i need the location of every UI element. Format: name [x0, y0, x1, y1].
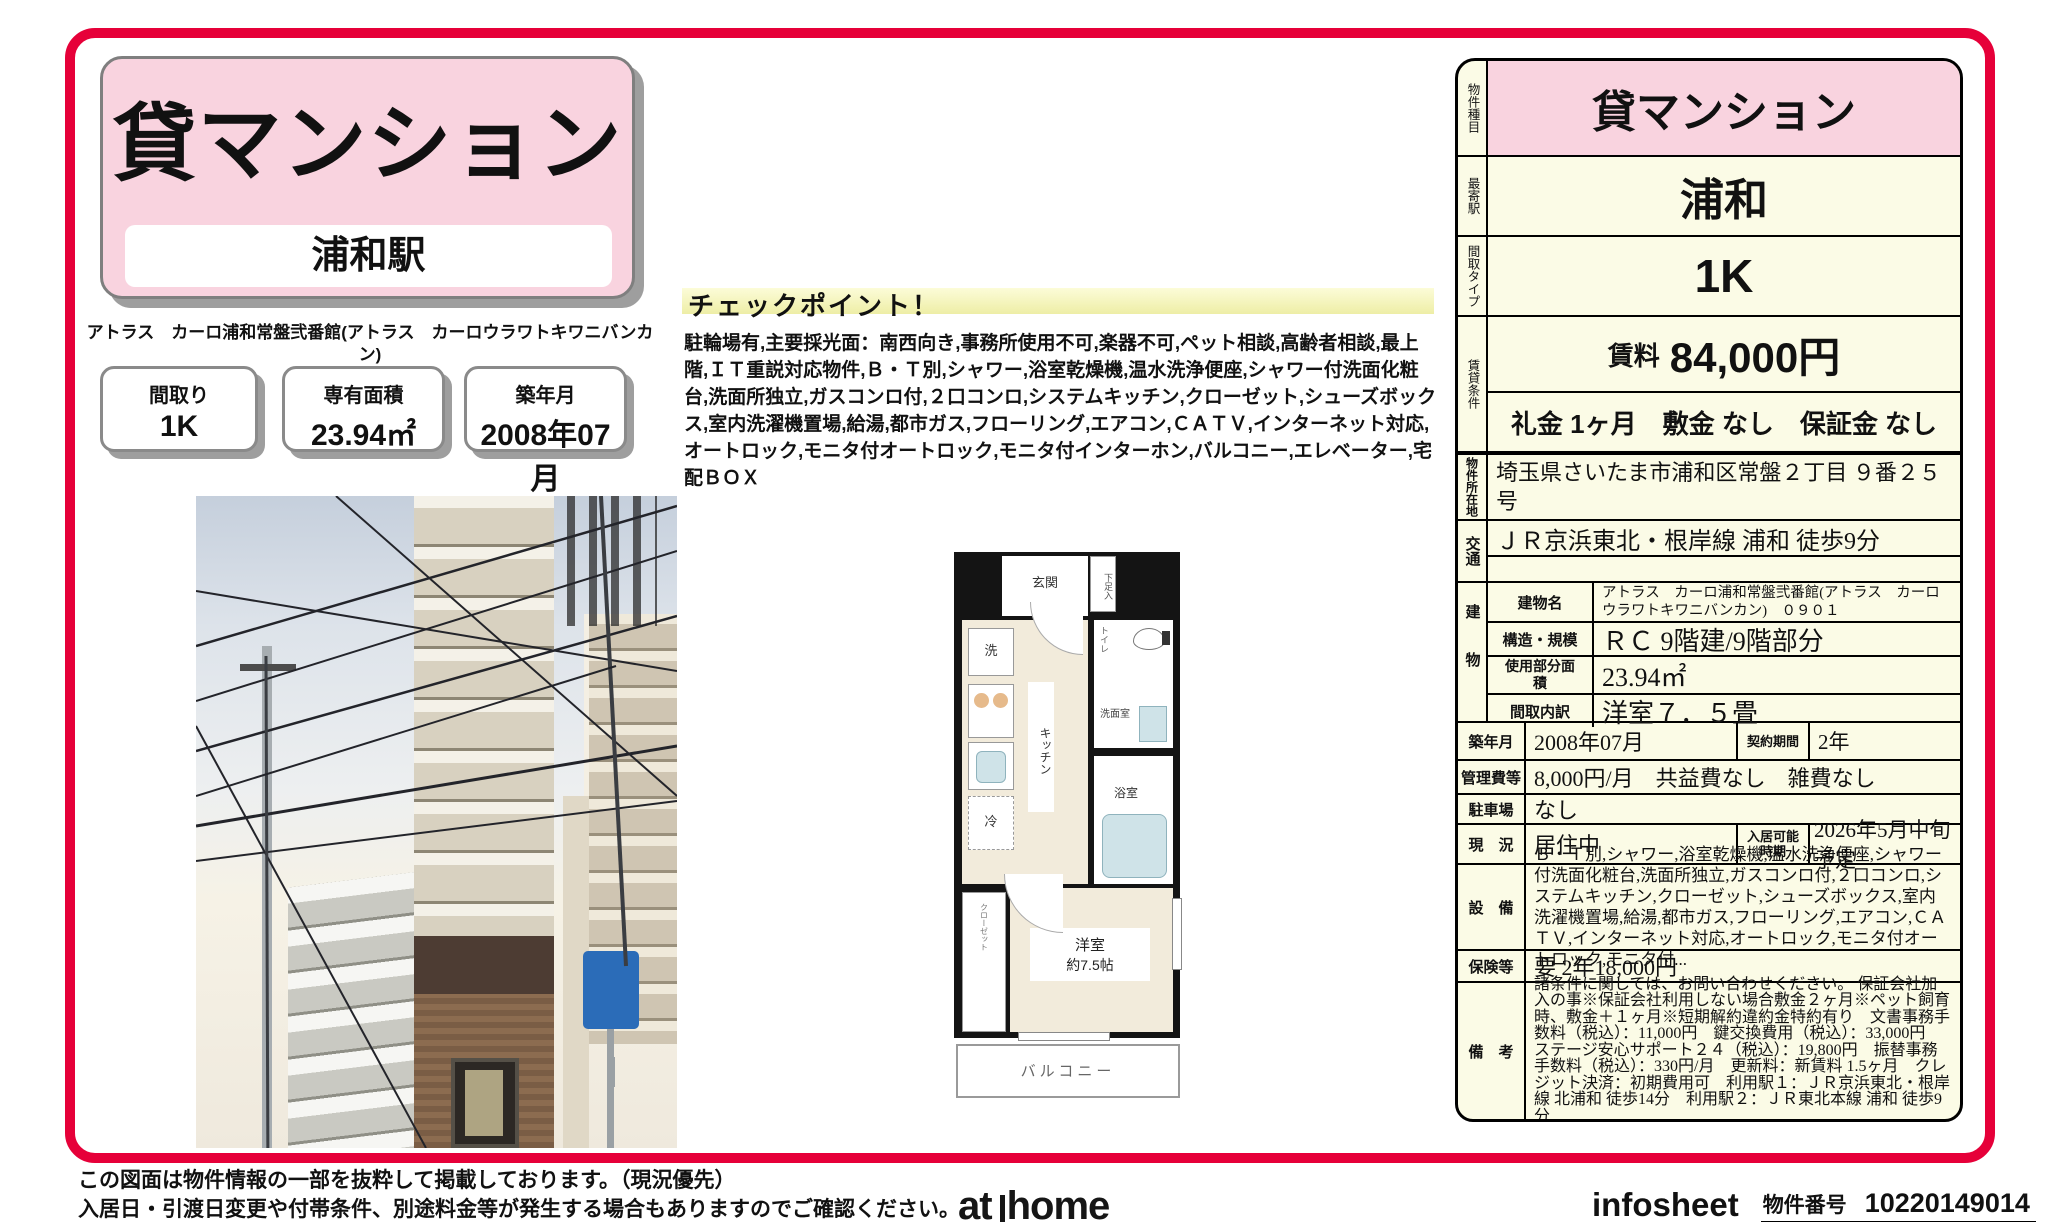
info-box-built: 築年月 2008年07月: [464, 366, 627, 452]
parking-label: 駐車場: [1458, 795, 1526, 823]
footer-line2: 入居日・引渡日変更や付帯条件、別途料金等が発生する場合もありますのでご確認くださ…: [78, 1195, 960, 1222]
logo-at: at: [958, 1184, 992, 1222]
equipment-label: 設 備: [1458, 865, 1526, 949]
kitchen-area: 洗 冷 キッチン: [962, 620, 1088, 884]
kitchen-label: キッチン: [1028, 682, 1054, 812]
contract-term-value: 2年: [1810, 723, 1960, 759]
address-value: 埼玉県さいたま市浦和区常盤２丁目 ９番２５号: [1488, 455, 1960, 519]
summary-table: 物件種目 貸マンション 最寄駅 浦和 間取タイプ 1K 賃貸条件 賃料 84,0…: [1455, 58, 1963, 454]
logo-home: home: [1007, 1184, 1110, 1222]
structure-label: 構造・規模: [1488, 623, 1594, 655]
building-name-label: 建物名: [1488, 583, 1594, 621]
infosheet-page: 貸マンション 浦和駅 アトラス カーロ浦和常盤弐番館(アトラス カーロウラワトキ…: [0, 0, 2056, 1222]
management-fee-label: 管理費等: [1458, 761, 1526, 793]
built-date-value: 2008年07月: [1526, 723, 1736, 759]
notes-value: 諸条件に関しては、お問い合わせください。 保証会社加入の事※保証会社利用しない場…: [1526, 983, 1960, 1119]
window: [1018, 1032, 1110, 1041]
layout-type-label: 間取タイプ: [1458, 237, 1488, 317]
station-name: 浦和駅: [125, 225, 612, 287]
checkpoint-title: チェックポイント！: [688, 286, 940, 323]
property-type-label: 物件種目: [1458, 61, 1488, 157]
management-fee-value: 8,000円/月 共益費なし 雑費なし: [1526, 761, 1960, 793]
used-area-value: 23.94㎡: [1594, 657, 1960, 693]
info-box-value: 23.94㎡: [285, 410, 442, 454]
bathroom: 浴室: [1094, 756, 1173, 884]
rent-value: 84,000円: [1670, 324, 1840, 385]
access-value: ＪＲ京浜東北・根岸線 浦和 徒歩9分: [1488, 521, 1960, 555]
infosheet-label: infosheet: [1592, 1186, 1739, 1222]
at-home-logo: athome: [958, 1184, 1109, 1222]
current-status-label: 現 況: [1458, 825, 1526, 863]
fees-row: 礼金 1ヶ月 敷金 なし 保証金 なし: [1488, 393, 1960, 451]
footer-line1: この図面は物件情報の一部を抜粋して掲載しております。（現況優先）: [78, 1166, 960, 1195]
info-box-label: 築年月: [467, 379, 624, 408]
property-number-value: 10220149014: [1865, 1188, 2030, 1219]
station-box: 浦和駅: [125, 225, 612, 287]
room-label-chip: 洋室 約7.5帖: [1030, 928, 1150, 981]
category-title: 貸マンション: [103, 77, 632, 198]
floor-plan: 玄関 下足入 トイレ 洗面室 浴室 洗 冷 キッチン クローゼット 洋室 約7.…: [948, 538, 1194, 1124]
room-size: 約7.5帖: [1030, 955, 1150, 975]
vanity-icon: [1139, 706, 1167, 742]
bathtub-icon: [1102, 814, 1167, 878]
info-box-layout: 間取り 1K: [100, 366, 258, 452]
footer-disclaimer: この図面は物件情報の一部を抜粋して掲載しております。（現況優先） 入居日・引渡日…: [78, 1166, 960, 1222]
checkpoint-body: 駐輪場有,主要採光面：南西向き,事務所使用不可,楽器不可,ペット相談,高齢者相談…: [684, 330, 1440, 492]
entrance-label: 玄関: [1002, 572, 1088, 591]
built-date-label: 築年月: [1458, 723, 1526, 759]
nearest-station-value: 浦和: [1488, 157, 1960, 237]
address-label: 物件所在地: [1458, 455, 1488, 519]
washer-label: 洗: [984, 643, 997, 658]
toilet-icon: [1133, 628, 1165, 650]
property-number-label: 物件番号: [1763, 1189, 1847, 1219]
info-box-label: 専有面積: [285, 379, 442, 408]
access-value-2: [1488, 557, 1960, 581]
window: [1172, 898, 1182, 970]
info-box-value: 1K: [103, 410, 255, 444]
toilet-label: トイレ: [1098, 626, 1111, 653]
property-name: アトラス カーロ浦和常盤弐番館(アトラス カーロウラワトキワニバンカン): [80, 322, 660, 366]
stove-icon: [968, 684, 1014, 738]
building-name-value: アトラス カーロ浦和常盤弐番館(アトラス カーロウラワトキワニバンカン) ０９０…: [1594, 583, 1960, 621]
shoe-box: 下足入: [1090, 556, 1116, 612]
used-area-label: 使用部分面積: [1488, 657, 1594, 693]
equipment-value: Ｂ・Ｔ別,シャワー,浴室乾燥機,温水洗浄便座,シャワー付洗面化粧台,洗面所独立,…: [1526, 865, 1960, 949]
layout-type-value: 1K: [1488, 237, 1960, 317]
logo-tick-mark: [1000, 1195, 1005, 1222]
info-box-label: 間取り: [103, 379, 255, 408]
rent-label: 賃料: [1608, 336, 1660, 373]
structure-value: ＲＣ 9階建/9階部分: [1594, 623, 1960, 655]
sink-icon: [968, 742, 1014, 790]
washer-space: 洗: [968, 628, 1014, 676]
toilet-washroom: トイレ 洗面室: [1094, 620, 1173, 748]
rent-row: 賃料 84,000円: [1488, 317, 1960, 393]
balcony: バルコニー: [956, 1044, 1180, 1098]
balcony-label: バルコニー: [958, 1060, 1178, 1081]
notes-label: 備 考: [1458, 983, 1526, 1119]
closet: クローゼット: [962, 892, 1006, 1032]
building-label: 建物: [1458, 583, 1488, 721]
property-number: 物件番号 10220149014: [1761, 1188, 2036, 1222]
closet-label: クローゼット: [979, 903, 990, 951]
shoe-box-label: 下足入: [1103, 573, 1113, 600]
rental-terms-label: 賃貸条件: [1458, 317, 1488, 451]
bathroom-label: 浴室: [1114, 784, 1138, 801]
property-type-value: 貸マンション: [1488, 61, 1960, 157]
building-photo: [196, 496, 677, 1148]
nearest-station-label: 最寄駅: [1458, 157, 1488, 237]
photo-power-lines: [196, 496, 677, 1148]
insurance-label: 保険等: [1458, 951, 1526, 981]
title-box: 貸マンション 浦和駅: [100, 56, 635, 299]
washroom-label: 洗面室: [1100, 705, 1130, 720]
detail-table: 物件所在地 埼玉県さいたま市浦和区常盤２丁目 ９番２５号 交通 ＪＲ京浜東北・根…: [1455, 452, 1963, 1122]
room-name: 洋室: [1030, 934, 1150, 955]
fridge-space: 冷: [968, 796, 1014, 850]
access-label: 交通: [1458, 521, 1488, 581]
info-box-area: 専有面積 23.94㎡: [282, 366, 445, 452]
infosheet-block: infosheet 物件番号 10220149014: [1592, 1186, 2036, 1222]
info-box-value: 2008年07月: [467, 410, 624, 498]
fridge-label: 冷: [984, 814, 997, 829]
contract-term-label: 契約期間: [1736, 723, 1810, 759]
